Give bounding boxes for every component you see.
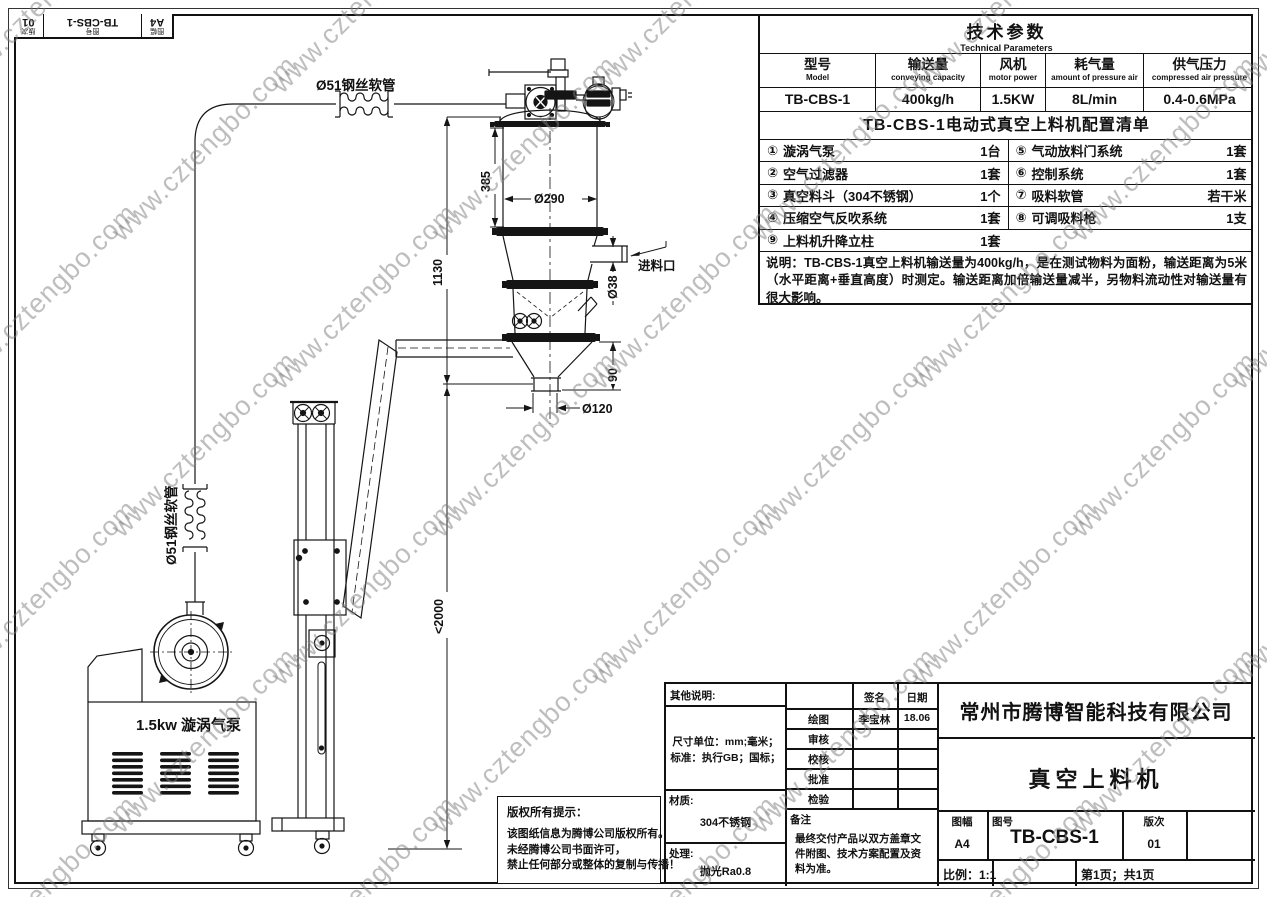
value-air-pressure: 0.4-0.6MPa <box>1143 88 1255 111</box>
remark-text: 最终交付产品以双方盖章文件附图、技术方案配置及资料为准。 <box>795 832 929 877</box>
product-name: 真空上料机 <box>937 762 1255 794</box>
tech-params-panel: 技术参数 Technical Parameters 型号Model 输送量con… <box>758 14 1253 305</box>
top-hose-label: Ø51钢丝软管 <box>316 77 396 93</box>
corner-drawing-no-label: 图号 <box>86 28 100 35</box>
dim-outlet-len: 90 <box>606 368 620 382</box>
value-motor: 1.5KW <box>980 88 1045 111</box>
title-block: 其他说明: 尺寸单位：mm;毫米； 标准：执行GB；国标； 材质: 304不锈钢… <box>664 682 1253 884</box>
value-air-consumption: 8L/min <box>1045 88 1143 111</box>
lifting-column <box>272 402 346 854</box>
remark-label: 备注 <box>790 812 811 827</box>
copyright-title: 版权所有提示： <box>507 804 656 820</box>
tech-params-subtitle: Technical Parameters <box>760 43 1253 53</box>
units-line1: 尺寸单位：mm;毫米； <box>668 734 783 749</box>
sheet-value: A4 <box>937 837 987 851</box>
config-list-title: TB-CBS-1电动式真空上料机配置清单 <box>760 112 1253 140</box>
sheet-label: 图幅 <box>937 814 987 829</box>
row-label-check: 校核 <box>785 752 852 767</box>
hopper-head-assembly <box>489 59 632 121</box>
col-motor: 风机motor power <box>980 54 1045 87</box>
vent-louvers <box>112 752 239 795</box>
blower-label: 1.5kw 漩涡气泵 <box>136 716 241 734</box>
tech-params-column-headers: 型号Model 输送量conveying capacity 风机motor po… <box>760 54 1253 88</box>
company-name: 常州市腾博智能科技有限公司 <box>937 696 1255 725</box>
col-air-consumption: 耗气量amount of pressure air <box>1045 54 1143 87</box>
config-item: ⑦吸料软管若干米 <box>1008 185 1254 206</box>
col-capacity: 输送量conveying capacity <box>875 54 980 87</box>
dim-barrel-height: 385 <box>479 171 493 192</box>
config-item: ③真空料斗（304不锈钢）1个 <box>760 185 1008 206</box>
config-item: ②空气过滤器1套 <box>760 162 1008 183</box>
dim-lift-height: <2000 <box>432 599 446 634</box>
corner-drawing-no-cell: 图号 TB-CBS-1 <box>43 14 142 37</box>
dim-outlet-dia: Ø120 <box>582 402 613 416</box>
dim-inlet-dia: Ø38 <box>606 275 620 299</box>
revision-label: 版次 <box>1122 814 1186 829</box>
dimension-arrows <box>444 117 640 849</box>
config-item: ⑧可调吸料枪1支 <box>1008 207 1254 228</box>
revision-value: 01 <box>1122 837 1186 851</box>
dim-unit-height: 1130 <box>431 259 445 286</box>
corner-sheet-value: A4 <box>150 17 164 28</box>
material-label: 材质: <box>669 793 694 808</box>
corner-sheet-label: 图幅 <box>150 28 164 35</box>
config-item: ⑤气动放料门系统1套 <box>1008 140 1254 161</box>
flexible-hose-icon <box>183 484 207 552</box>
value-model: TB-CBS-1 <box>760 88 875 111</box>
dimension-lines <box>388 117 666 849</box>
copyright-line3: 禁止任何部分或整体的复制与传播！ <box>507 858 656 874</box>
copyright-box: 版权所有提示： 该图纸信息为腾博公司版权所有。 未经腾博公司书面许可， 禁止任何… <box>497 796 661 884</box>
sign-header: 签名 <box>852 690 897 705</box>
config-item: ④压缩空气反吹系统1套 <box>760 207 1008 228</box>
row-label-approve: 批准 <box>785 772 852 787</box>
units-line2: 标准：执行GB；国标； <box>668 750 783 765</box>
drawing-sheet: 图幅 A4 图号 TB-CBS-1 版次 01 <box>0 0 1267 897</box>
tech-params-values: TB-CBS-1 400kg/h 1.5KW 8L/min 0.4-0.6MPa <box>760 88 1253 112</box>
corner-sheet-cell: 图幅 A4 <box>141 14 172 37</box>
feed-inlet-label: 进料口 <box>638 258 676 273</box>
corner-title-strip: 图幅 A4 图号 TB-CBS-1 版次 01 <box>14 14 174 39</box>
draw-date: 18.06 <box>897 712 937 724</box>
config-item: ①漩涡气泵1台 <box>760 140 1008 161</box>
other-notes-label: 其他说明: <box>670 688 716 703</box>
corner-revision-cell: 版次 01 <box>14 14 43 37</box>
tech-params-header: 技术参数 Technical Parameters <box>760 14 1253 54</box>
config-item: ⑥控制系统1套 <box>1008 162 1254 183</box>
config-note: 说明：TB-CBS-1真空上料机输送量为400kg/h，是在测试物料为面粉，输送… <box>760 252 1253 308</box>
config-row: ④压缩空气反吹系统1套 ⑧可调吸料枪1支 <box>760 207 1253 229</box>
row-label-review: 审核 <box>785 732 852 747</box>
copyright-line1: 该图纸信息为腾博公司版权所有。 <box>507 827 656 843</box>
config-row: ⑨上料机升降立柱1套 <box>760 230 1253 252</box>
config-row: ③真空料斗（304不锈钢）1个 ⑦吸料软管若干米 <box>760 185 1253 207</box>
col-model: 型号Model <box>760 54 875 87</box>
corner-revision-value: 01 <box>22 17 34 28</box>
corner-revision-label: 版次 <box>21 28 35 35</box>
page-value: 第1页；共1页 <box>1081 866 1154 883</box>
material-value: 304不锈钢 <box>666 814 785 830</box>
drawing-no-value: TB-CBS-1 <box>987 827 1122 849</box>
hose-route <box>195 104 506 602</box>
date-header: 日期 <box>897 690 937 705</box>
config-row: ①漩涡气泵1台 ⑤气动放料门系统1套 <box>760 140 1253 162</box>
support-arm <box>343 340 513 618</box>
config-item-empty <box>1008 230 1254 251</box>
tech-params-title: 技术参数 <box>760 14 1253 43</box>
corner-drawing-no-value: TB-CBS-1 <box>67 17 118 28</box>
flexible-hose-icon <box>335 91 393 117</box>
scale-value: 比例：1:1 <box>943 866 996 883</box>
draw-sign: 李宝林 <box>852 712 897 727</box>
dim-barrel-dia: Ø290 <box>534 192 565 206</box>
treatment-value: 抛光Ra0.8 <box>666 863 785 879</box>
copyright-line2: 未经腾博公司书面许可， <box>507 843 656 859</box>
col-air-pressure: 供气压力compressed air pressure <box>1143 54 1255 87</box>
config-row: ②空气过滤器1套 ⑥控制系统1套 <box>760 162 1253 184</box>
value-capacity: 400kg/h <box>875 88 980 111</box>
left-hose-label: Ø51钢丝软管 <box>163 485 179 565</box>
config-item: ⑨上料机升降立柱1套 <box>760 230 1008 251</box>
row-label-inspect: 检验 <box>785 792 852 807</box>
row-label-draw: 绘图 <box>785 712 852 727</box>
